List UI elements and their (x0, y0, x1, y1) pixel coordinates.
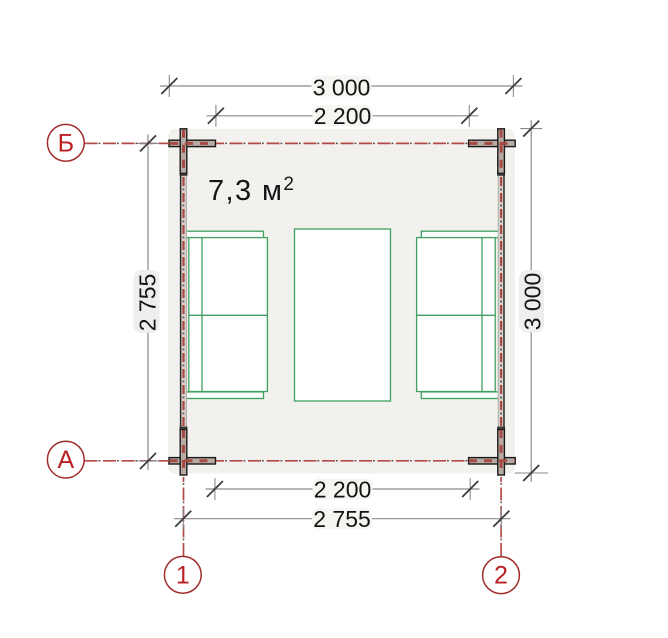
svg-text:2 200: 2 200 (314, 103, 372, 129)
svg-text:3 000: 3 000 (520, 273, 546, 331)
svg-text:Б: Б (58, 129, 74, 157)
svg-text:2: 2 (494, 562, 508, 590)
svg-text:А: А (57, 446, 74, 474)
svg-text:2 755: 2 755 (135, 274, 161, 332)
svg-text:7,3 м2: 7,3 м2 (208, 174, 294, 207)
svg-text:3 000: 3 000 (313, 74, 371, 100)
svg-text:1: 1 (176, 561, 190, 589)
svg-text:2 755: 2 755 (313, 506, 371, 532)
svg-text:2 200: 2 200 (314, 476, 372, 502)
